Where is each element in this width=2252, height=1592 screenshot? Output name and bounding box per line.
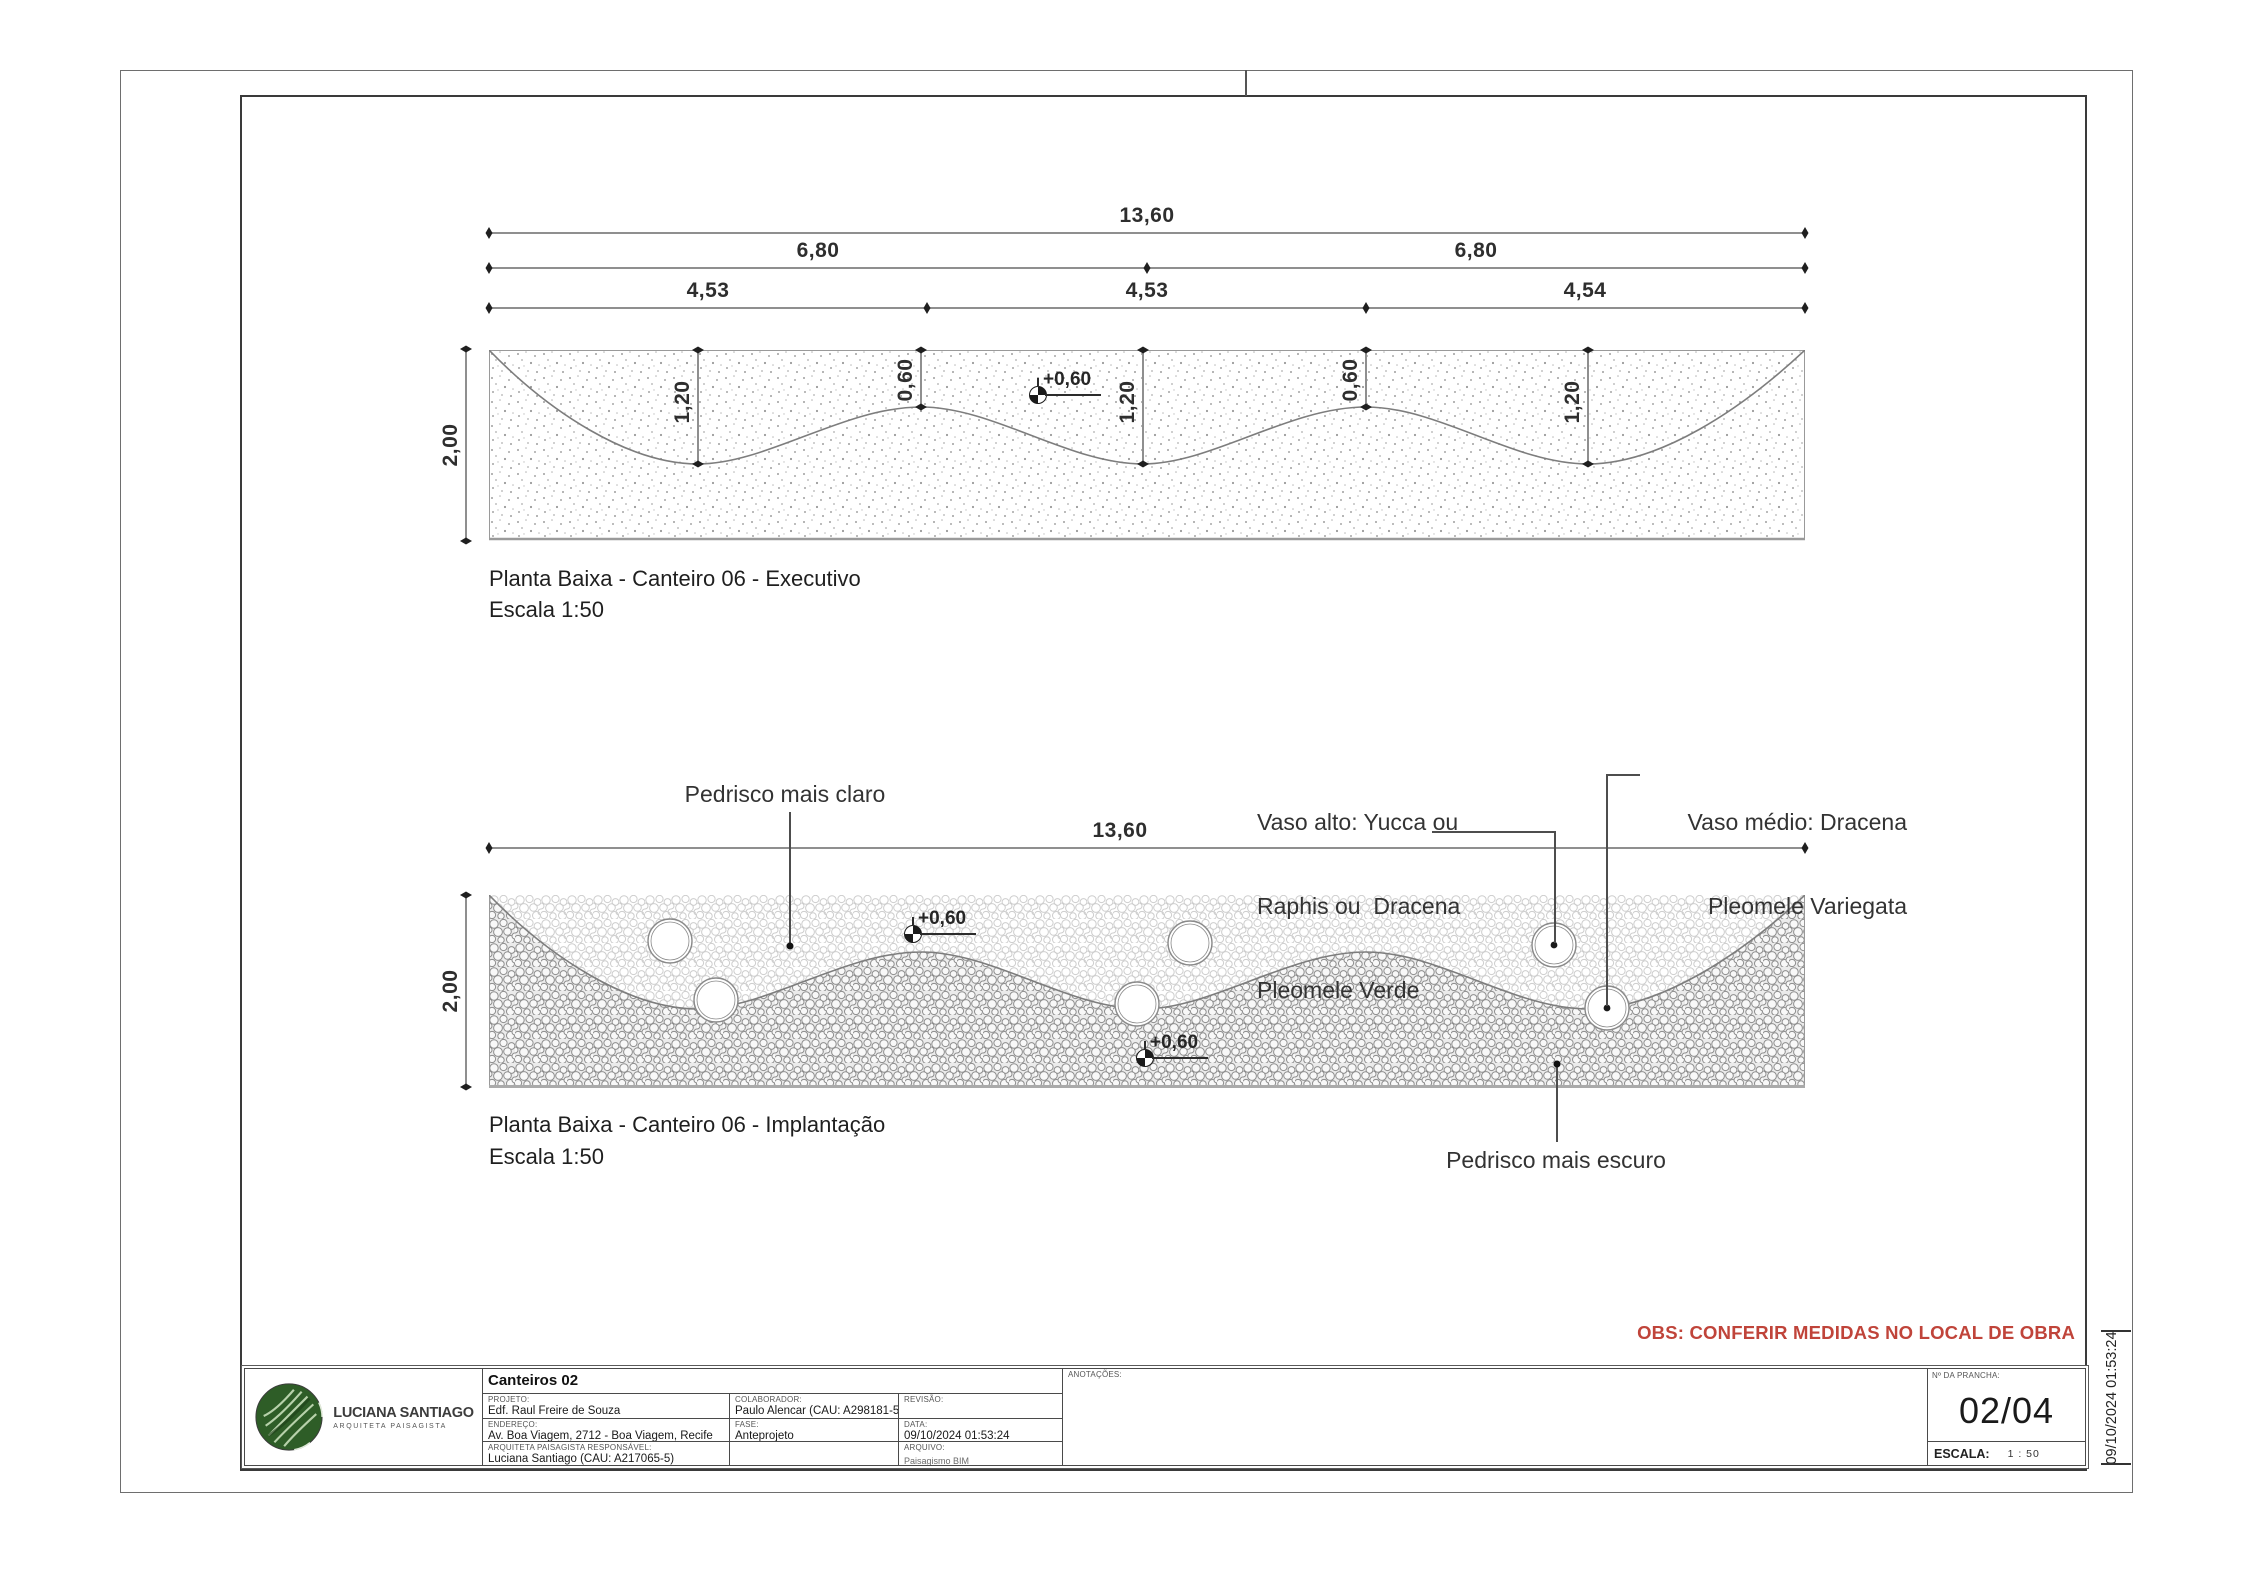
logo: LUCIANA SANTIAGO ARQUITETA PAISAGISTA <box>245 1369 482 1465</box>
leaf-logo-icon <box>253 1381 325 1453</box>
date-stamp-tick-bottom <box>2101 1463 2131 1465</box>
field-label: ANOTAÇÕES: <box>1068 1370 1922 1379</box>
leader-light-gravel <box>789 812 791 944</box>
dim-label: 6,80 <box>1455 239 1498 263</box>
label-medium-vase: Vaso médio: Dracena Pleomele Variegata <box>1645 752 1907 976</box>
dim-label: 6,80 <box>797 239 840 263</box>
field-endereco: ENDEREÇO: Av. Boa Viagem, 2712 - Boa Via… <box>482 1418 729 1441</box>
field-colaborador: COLABORADOR: Paulo Alencar (CAU: A298181… <box>729 1393 898 1418</box>
level-value: +0,60 <box>918 908 966 930</box>
title-block: LUCIANA SANTIAGO ARQUITETA PAISAGISTA Ca… <box>244 1368 2086 1466</box>
label-light-gravel: Pedrisco mais claro <box>660 780 910 808</box>
field-label: Nº DA PRANCHA: <box>1928 1369 2085 1380</box>
label-line: Pleomele Variegata <box>1645 892 1907 920</box>
field-value: Edf. Raul Freire de Souza <box>488 1405 724 1418</box>
plan-title-executivo: Planta Baixa - Canteiro 06 - Executivo <box>489 566 861 592</box>
field-data: DATA: 09/10/2024 01:53:24 <box>898 1418 1062 1441</box>
field-value: Anteprojeto <box>735 1430 893 1441</box>
obs-note: OBS: CONFERIR MEDIDAS NO LOCAL DE OBRA <box>1590 1322 2075 1344</box>
field-value: 09/10/2024 01:53:24 <box>904 1430 1057 1441</box>
plan-scale-executivo: Escala 1:50 <box>489 597 604 623</box>
label-line: Pleomele Verde <box>1257 976 1460 1004</box>
dim-label: 0,60 <box>894 359 918 402</box>
date-stamp-tick-top <box>2101 1330 2131 1332</box>
label-line: Vaso médio: Dracena <box>1645 808 1907 836</box>
level-value: +0,60 <box>1150 1032 1198 1054</box>
scale-row: ESCALA: 1 : 50 <box>1928 1441 2085 1465</box>
field-label: FASE: <box>735 1420 893 1429</box>
label-line: Raphis ou Dracena <box>1257 892 1460 920</box>
dim-label: 1,20 <box>1116 381 1140 424</box>
dim-label: 13,60 <box>1119 204 1174 228</box>
field-revisao: REVISÃO: <box>898 1393 1062 1418</box>
field-label: PROJETO: <box>488 1395 724 1404</box>
dim-label: 2,00 <box>439 424 463 467</box>
field-label: COLABORADOR: <box>735 1395 893 1404</box>
plan-scale-implantacao: Escala 1:50 <box>489 1144 604 1170</box>
field-value: Luciana Santiago (CAU: A217065-5) <box>488 1453 724 1465</box>
field-value: Paulo Alencar (CAU: A298181-5) <box>735 1405 893 1418</box>
field-label: DATA: <box>904 1420 1057 1429</box>
leader-tall-vase-h <box>1432 831 1556 833</box>
leader-dot <box>1554 1061 1561 1068</box>
plot-date-stamp: 09/10/2024 01:53:24 <box>2104 1315 2120 1481</box>
plan-executivo-canvas <box>489 350 1805 541</box>
dim-label: 1,20 <box>671 381 695 424</box>
level-value: +0,60 <box>1043 369 1091 391</box>
field-label: ENDEREÇO: <box>488 1420 724 1429</box>
field-label: REVISÃO: <box>904 1395 1057 1404</box>
field-fase: FASE: Anteprojeto <box>729 1418 898 1441</box>
dim-label: 13,60 <box>1092 819 1147 843</box>
leader-dark-gravel <box>1556 1064 1558 1142</box>
sheet-number: 02/04 <box>1928 1380 2085 1441</box>
field-value: Av. Boa Viagem, 2712 - Boa Viagem, Recif… <box>488 1430 724 1441</box>
leader-tall-vase-v <box>1554 831 1556 943</box>
top-center-fold-tick <box>1245 70 1247 96</box>
logo-name: LUCIANA SANTIAGO <box>333 1405 473 1421</box>
field-value: Paisagismo BIM <box>904 1455 1057 1465</box>
sheet-title-cell: Canteiros 02 <box>482 1369 1062 1393</box>
leader-medium-vase-h <box>1607 774 1640 776</box>
field-projeto: PROJETO: Edf. Raul Freire de Souza <box>482 1393 729 1418</box>
annotations-cell: ANOTAÇÕES: <box>1062 1369 1927 1465</box>
field-label: ARQUITETA PAISAGISTA RESPONSÁVEL: <box>488 1443 724 1452</box>
scale-value: 1 : 50 <box>2008 1448 2040 1460</box>
logo-subtitle: ARQUITETA PAISAGISTA <box>333 1423 473 1430</box>
dim-label: 4,53 <box>687 279 730 303</box>
leader-dot <box>787 943 794 950</box>
label-tall-vase: Vaso alto: Yucca ou Raphis ou Dracena Pl… <box>1257 752 1460 1060</box>
field-empty <box>729 1441 898 1465</box>
field-label: ARQUIVO: <box>904 1443 1057 1452</box>
sheet-number-cell: Nº DA PRANCHA: 02/04 ESCALA: 1 : 50 <box>1927 1369 2085 1465</box>
label-line: Vaso alto: Yucca ou <box>1257 808 1460 836</box>
plan-title-implantacao: Planta Baixa - Canteiro 06 - Implantação <box>489 1112 885 1138</box>
label-dark-gravel: Pedrisco mais escuro <box>1420 1146 1692 1174</box>
dim-label: 2,00 <box>439 970 463 1013</box>
leader-medium-vase-v <box>1606 774 1608 1006</box>
dim-label: 4,54 <box>1564 279 1607 303</box>
dim-label: 4,53 <box>1126 279 1169 303</box>
field-responsavel: ARQUITETA PAISAGISTA RESPONSÁVEL: Lucian… <box>482 1441 729 1465</box>
field-arquivo: ARQUIVO: Paisagismo BIM <box>898 1441 1062 1465</box>
dim-label: 0,60 <box>1339 359 1363 402</box>
scale-label: ESCALA: <box>1934 1447 1990 1461</box>
sheet-title: Canteiros 02 <box>488 1370 1057 1391</box>
drawing-sheet: 13,60 6,80 6,80 4,53 4,53 4,54 <box>0 0 2252 1592</box>
dim-label: 1,20 <box>1561 381 1585 424</box>
